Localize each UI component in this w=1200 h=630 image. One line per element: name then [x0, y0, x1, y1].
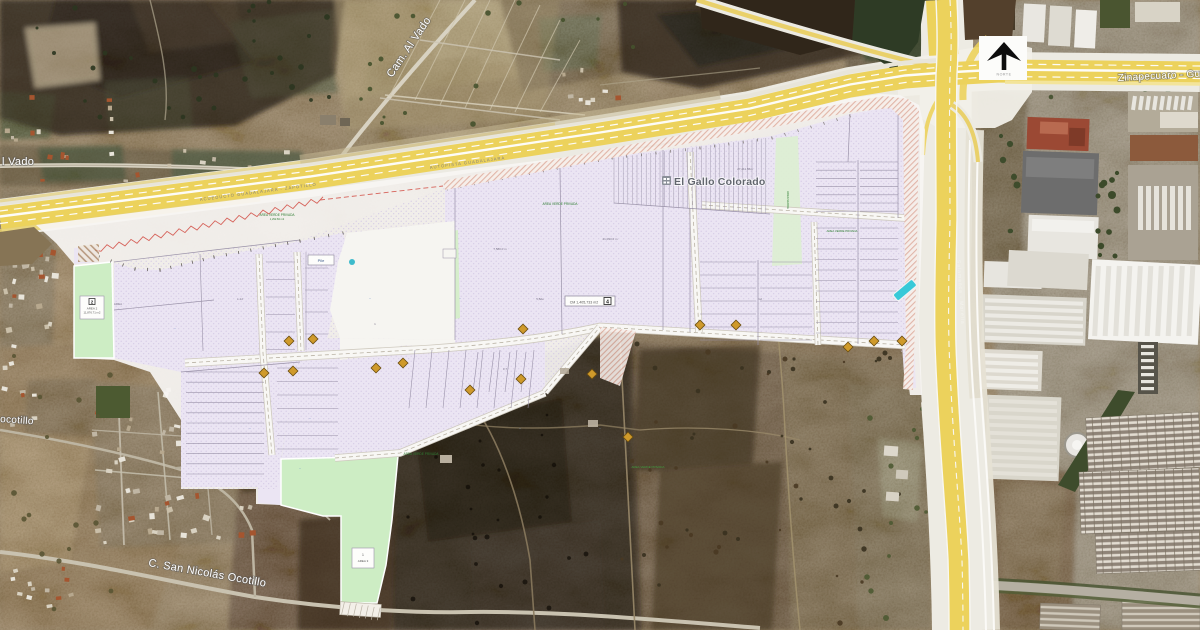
svg-text:l Vado: l Vado: [2, 156, 34, 168]
svg-text:AREA VERDE PRIVADA: AREA VERDE PRIVADA: [403, 452, 439, 456]
svg-text:7,580.0 m: 7,580.0 m: [493, 247, 507, 251]
svg-text:5,8de: 5,8de: [536, 297, 544, 301]
svg-text:21,093.0 m: 21,093.0 m: [602, 237, 618, 241]
svg-text:NORTE: NORTE: [996, 73, 1011, 77]
svg-text:AREA VERDE: AREA VERDE: [786, 191, 790, 209]
svg-text:~: ~: [249, 427, 251, 431]
svg-text:AREA VERDE PRIVADA: AREA VERDE PRIVADA: [542, 202, 578, 206]
svg-text:AREA VERDE PRIVADA: AREA VERDE PRIVADA: [632, 465, 665, 469]
svg-text:Pile: Pile: [318, 258, 325, 263]
svg-text:4: 4: [606, 300, 609, 306]
svg-text:3,7: 3,7: [503, 367, 508, 371]
svg-text:~: ~: [369, 297, 371, 301]
svg-text:AREA VERDE PRIVADA: AREA VERDE PRIVADA: [259, 213, 295, 217]
svg-text:L-12: L-12: [237, 297, 243, 301]
svg-text:AREA 3: AREA 3: [358, 559, 369, 563]
svg-text:AREA: AREA: [114, 302, 122, 306]
svg-text:27,211.56m: 27,211.56m: [737, 167, 753, 171]
svg-text:~: ~: [519, 427, 521, 431]
svg-text:~: ~: [174, 327, 176, 331]
svg-text:~: ~: [599, 427, 601, 431]
svg-text:ocotillo: ocotillo: [0, 414, 34, 427]
svg-text:CM 1,405,733 m2: CM 1,405,733 m2: [570, 301, 599, 305]
svg-text:m2: m2: [758, 297, 762, 301]
svg-text:1: 1: [362, 553, 364, 557]
svg-text:AREA VERDE PRIVADA: AREA VERDE PRIVADA: [827, 229, 858, 233]
svg-text:~: ~: [309, 417, 311, 421]
svg-text:11,876.71 m2: 11,876.71 m2: [84, 311, 101, 315]
svg-text:1,292.84 m2: 1,292.84 m2: [270, 217, 285, 221]
svg-text:~: ~: [299, 467, 301, 471]
svg-text:El Gallo Colorado: El Gallo Colorado: [674, 176, 766, 188]
svg-text:~: ~: [459, 297, 461, 301]
